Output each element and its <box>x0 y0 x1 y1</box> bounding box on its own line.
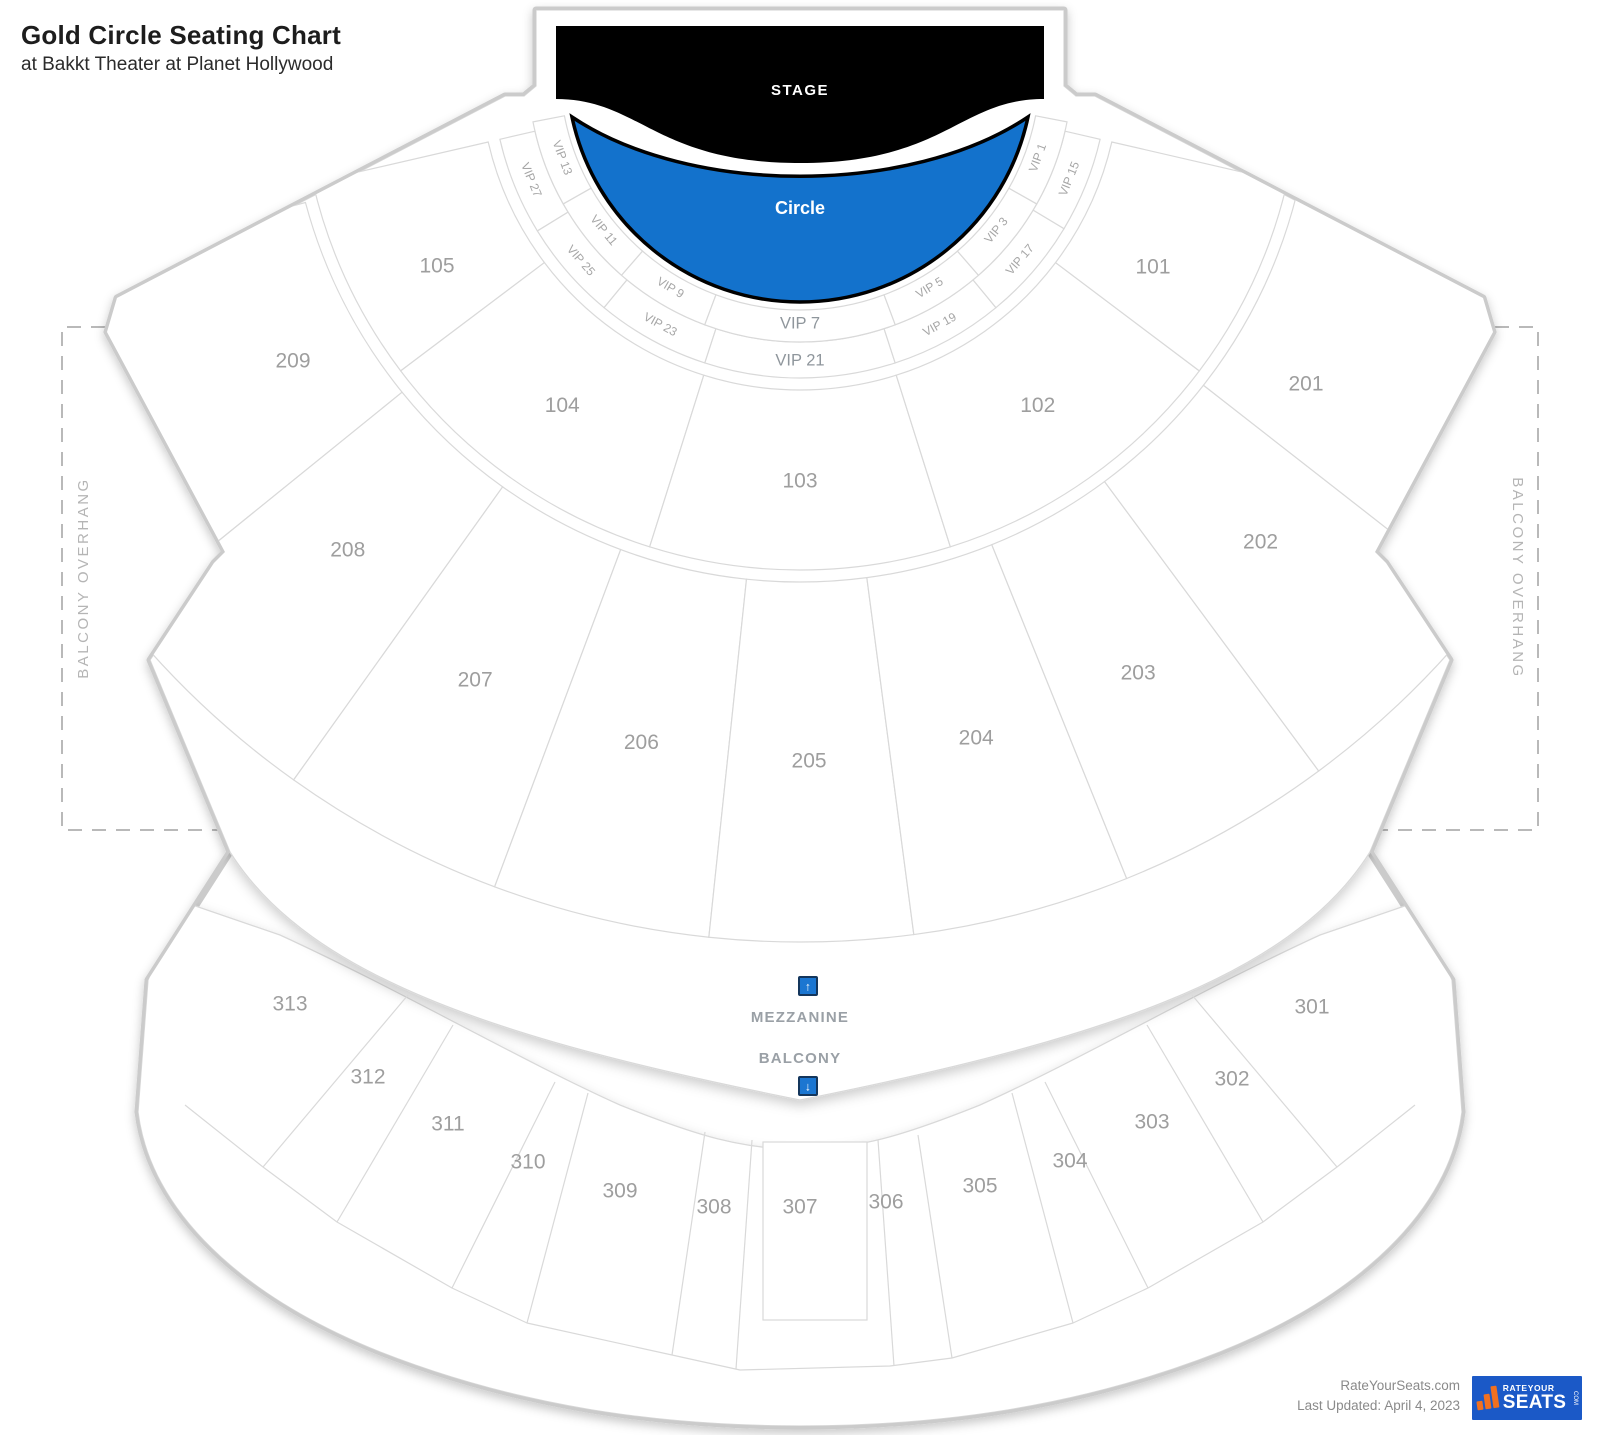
footer-updated: Last Updated: April 4, 2023 <box>1297 1396 1460 1416</box>
section-label: 307 <box>782 1196 817 1219</box>
page-header: Gold Circle Seating Chart at Bakkt Theat… <box>21 20 341 76</box>
mezzanine-up-icon-glyph: ↑ <box>805 980 811 994</box>
section-label: 305 <box>962 1175 997 1198</box>
section-label: 204 <box>959 727 994 750</box>
section-label: 308 <box>696 1196 731 1219</box>
section-label: 312 <box>350 1066 385 1089</box>
section-label: 101 <box>1135 256 1170 279</box>
circle-label: Circle <box>775 198 825 218</box>
page-subtitle: at Bakkt Theater at Planet Hollywood <box>21 54 341 76</box>
section-label: VIP 21 <box>775 351 824 369</box>
overhang-label-right: BALCONY OVERHANG <box>1509 477 1526 678</box>
section-label: 302 <box>1214 1068 1249 1091</box>
section-label: 301 <box>1294 996 1329 1019</box>
section-label: 313 <box>272 993 307 1016</box>
section-label: 205 <box>792 749 827 772</box>
balcony-label: BALCONY <box>759 1050 842 1067</box>
page-title: Gold Circle Seating Chart <box>21 20 341 51</box>
stage-label: STAGE <box>771 82 829 99</box>
section-label: 304 <box>1052 1150 1087 1173</box>
section-label: 202 <box>1243 530 1278 553</box>
section-label: 105 <box>419 255 454 278</box>
bar-chart-icon <box>1474 1386 1499 1411</box>
section-label: 209 <box>275 350 310 373</box>
section-label: 310 <box>510 1151 545 1174</box>
section-label: 303 <box>1134 1111 1169 1134</box>
section-label: 103 <box>782 470 817 493</box>
rateyourseats-logo[interactable]: RATEYOUR SEATS COM <box>1472 1376 1582 1420</box>
section-label: 309 <box>602 1180 637 1203</box>
section-label: 203 <box>1121 661 1156 684</box>
section-label: 208 <box>330 538 365 561</box>
section-label: 201 <box>1288 373 1323 396</box>
section-label: 311 <box>431 1113 464 1136</box>
mezzanine-label: MEZZANINE <box>751 1009 849 1026</box>
section-label: 102 <box>1020 394 1055 417</box>
overhang-label-left: BALCONY OVERHANG <box>75 477 92 678</box>
section-label: 206 <box>624 731 659 754</box>
seating-map: BALCONY OVERHANGBALCONY OVERHANG20920820… <box>0 0 1600 1435</box>
section-label: VIP 7 <box>780 314 820 332</box>
section-307-box[interactable] <box>763 1142 867 1320</box>
logo-suffix: COM <box>1572 1391 1578 1405</box>
section-label: 306 <box>868 1191 903 1214</box>
section-label: 104 <box>545 394 580 417</box>
logo-line2: SEATS <box>1503 1393 1566 1412</box>
footer-credit: RateYourSeats.com Last Updated: April 4,… <box>1297 1376 1460 1417</box>
section-label: 207 <box>458 669 493 692</box>
balcony-down-icon-glyph: ↓ <box>805 1080 811 1094</box>
footer-site: RateYourSeats.com <box>1297 1376 1460 1396</box>
